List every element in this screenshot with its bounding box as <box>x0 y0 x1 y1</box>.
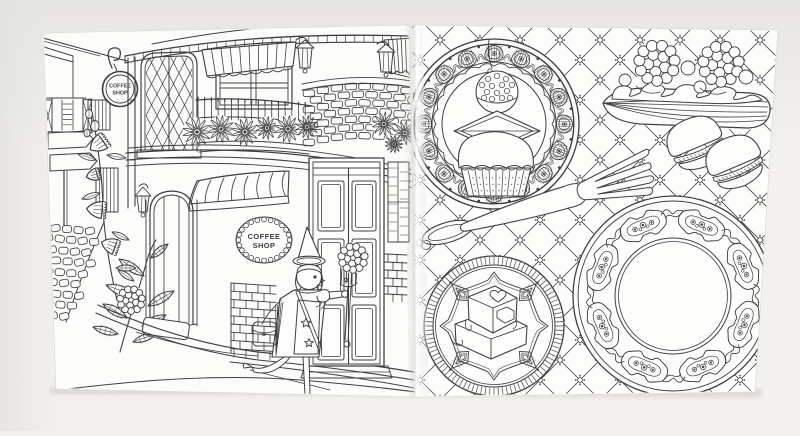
svg-text:COFFEE: COFFEE <box>248 232 281 241</box>
svg-text:SHOP: SHOP <box>112 91 128 97</box>
svg-text:SHOP: SHOP <box>253 241 276 250</box>
